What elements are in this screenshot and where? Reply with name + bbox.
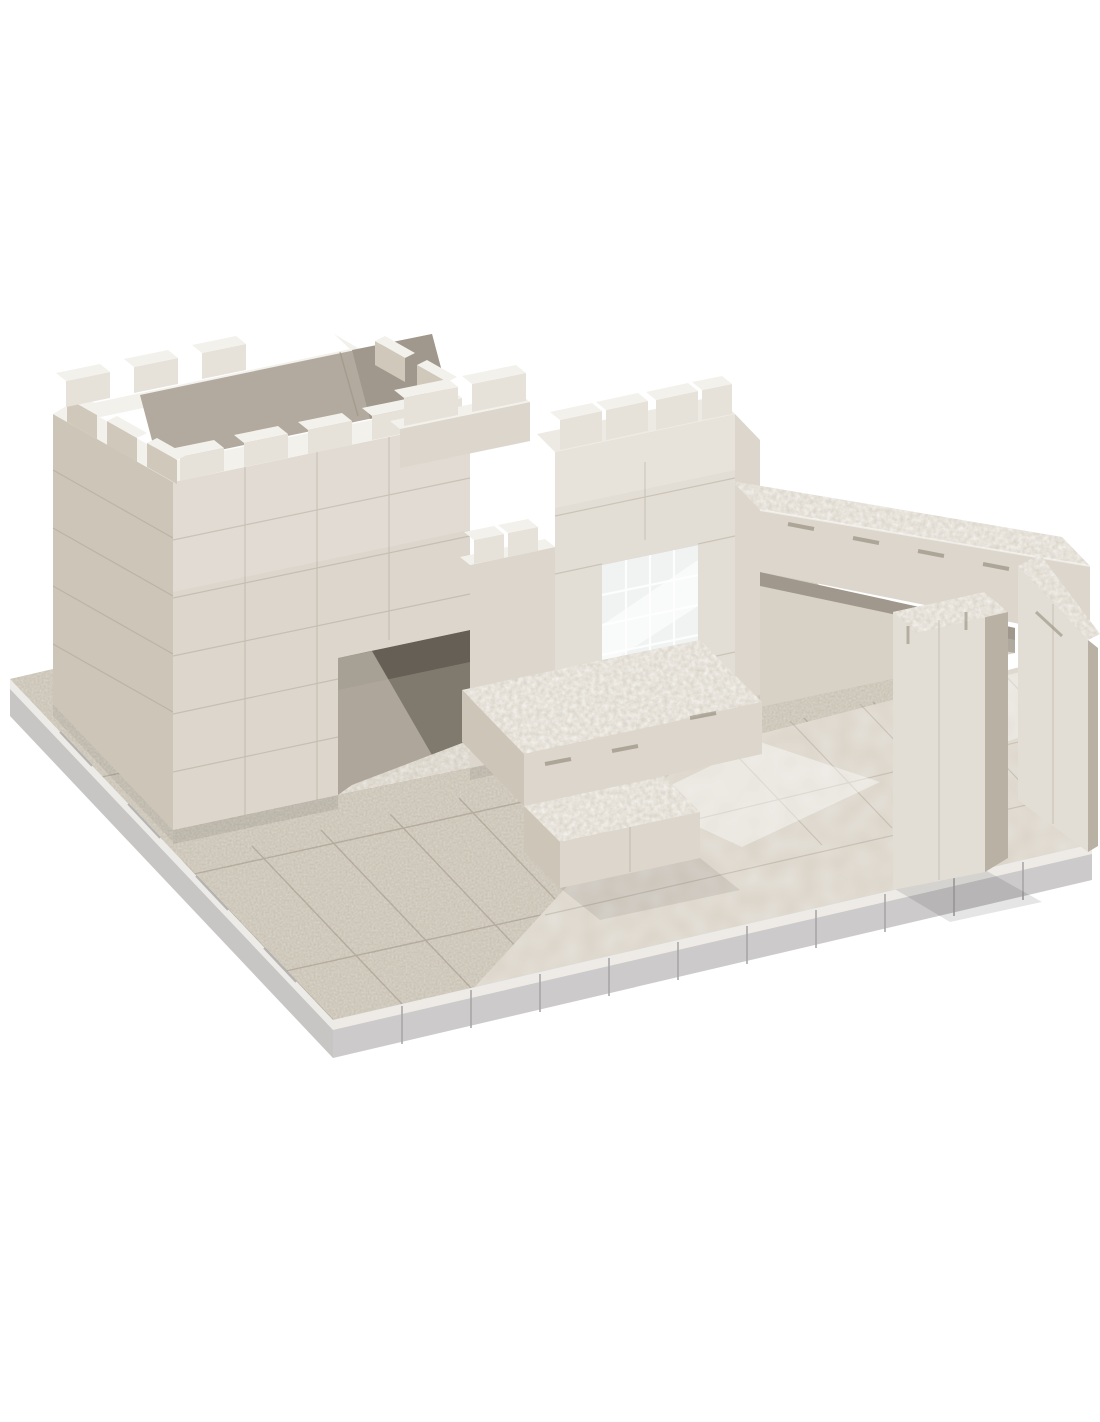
- wall-right-of-window: [735, 414, 760, 700]
- doorway: doorway opening: [338, 630, 470, 795]
- product-photo-canvas: stone-textured baseplate glossy interior…: [0, 0, 1100, 1422]
- return-wall-right-sliver: [1088, 640, 1098, 852]
- model-kit-illustration: stone-textured baseplate glossy interior…: [0, 0, 1100, 1422]
- left-room: open-top walled room doorway opening: [53, 334, 530, 830]
- pillar-right-face: [985, 592, 1008, 872]
- pillar: freestanding pillar: [893, 592, 1008, 890]
